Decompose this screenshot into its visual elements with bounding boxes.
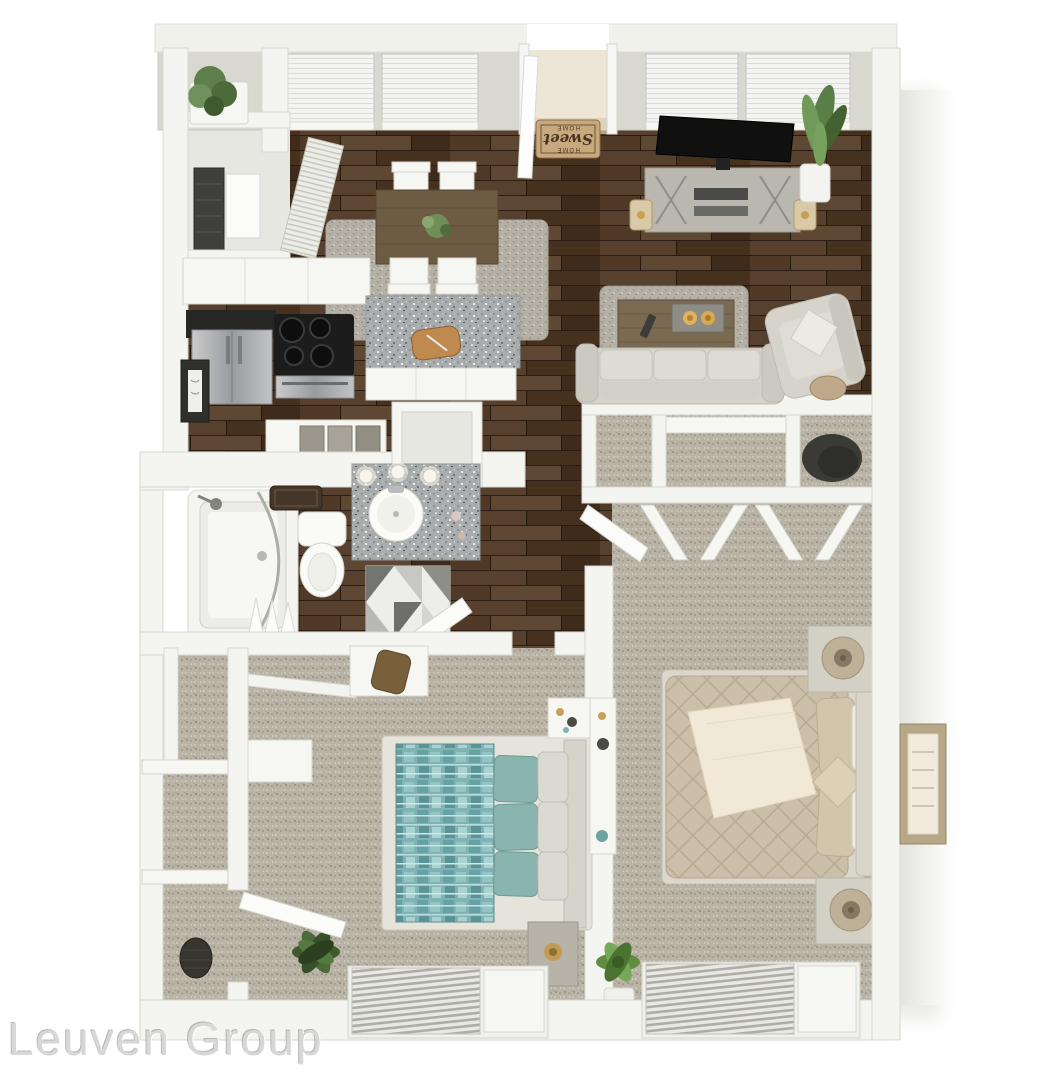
alcove-shelf [666,417,786,433]
accent-pillow [493,755,539,803]
basket [180,938,212,978]
window-kitchen-2 [382,54,478,130]
basket-bag [810,376,846,400]
pillow [538,802,568,852]
master-window [642,962,860,1038]
vanity-decor [451,511,461,521]
master-top-wall [582,487,873,503]
accent-pillow [493,803,539,851]
bedroom-nightstand [548,698,590,738]
accent-chair [802,434,862,482]
pillow [538,752,568,802]
toilet [298,512,346,597]
bedroom-desk [246,740,312,782]
sofa [576,344,784,404]
closet-shelf [142,760,228,774]
console-table [590,698,616,854]
candle-tray [672,304,724,332]
left-wall-lower [140,468,163,1038]
kitchen-wall-art [181,360,209,422]
floor-plan-svg: HOME Sweet HOME [0,0,1057,1080]
teal-duvet [396,744,494,922]
folded-towels [300,426,380,452]
right-wall [872,48,956,1040]
dining-chair [436,258,478,294]
kitchen-counter [183,258,370,304]
tv-stand [716,158,730,170]
stove [274,314,354,398]
tv [656,116,794,162]
welcome-mat: HOME Sweet HOME [536,120,600,158]
faucet [388,486,404,493]
bedroom-window [348,966,548,1038]
vanity [352,462,480,560]
lantern [794,200,816,230]
accent-pillow [493,851,539,897]
dining-chair [388,258,430,294]
cutting-board [410,325,462,361]
granite-peninsula [366,296,520,400]
tub-drain [257,551,267,561]
door-frame-right [607,44,617,134]
bathtub [188,490,298,640]
closet-door [226,174,260,238]
nightstand [808,626,878,692]
lantern [630,200,652,230]
pillow [538,852,568,900]
closet-shelf [142,870,228,884]
water-heater [194,168,224,250]
mat-text-bottom: HOME [556,124,580,130]
watermark: Leuven Group [8,1012,324,1066]
vanity-decor [458,532,466,540]
master-wall-art [900,724,946,844]
bath-mat [270,486,322,510]
teal-bed [382,736,592,930]
media-console [645,168,800,232]
bedroom-top-wall [140,632,512,655]
master-bed [662,670,886,884]
mat-text-middle: Sweet [543,130,593,148]
floor-plan-render: HOME Sweet HOME [0,0,1057,1080]
